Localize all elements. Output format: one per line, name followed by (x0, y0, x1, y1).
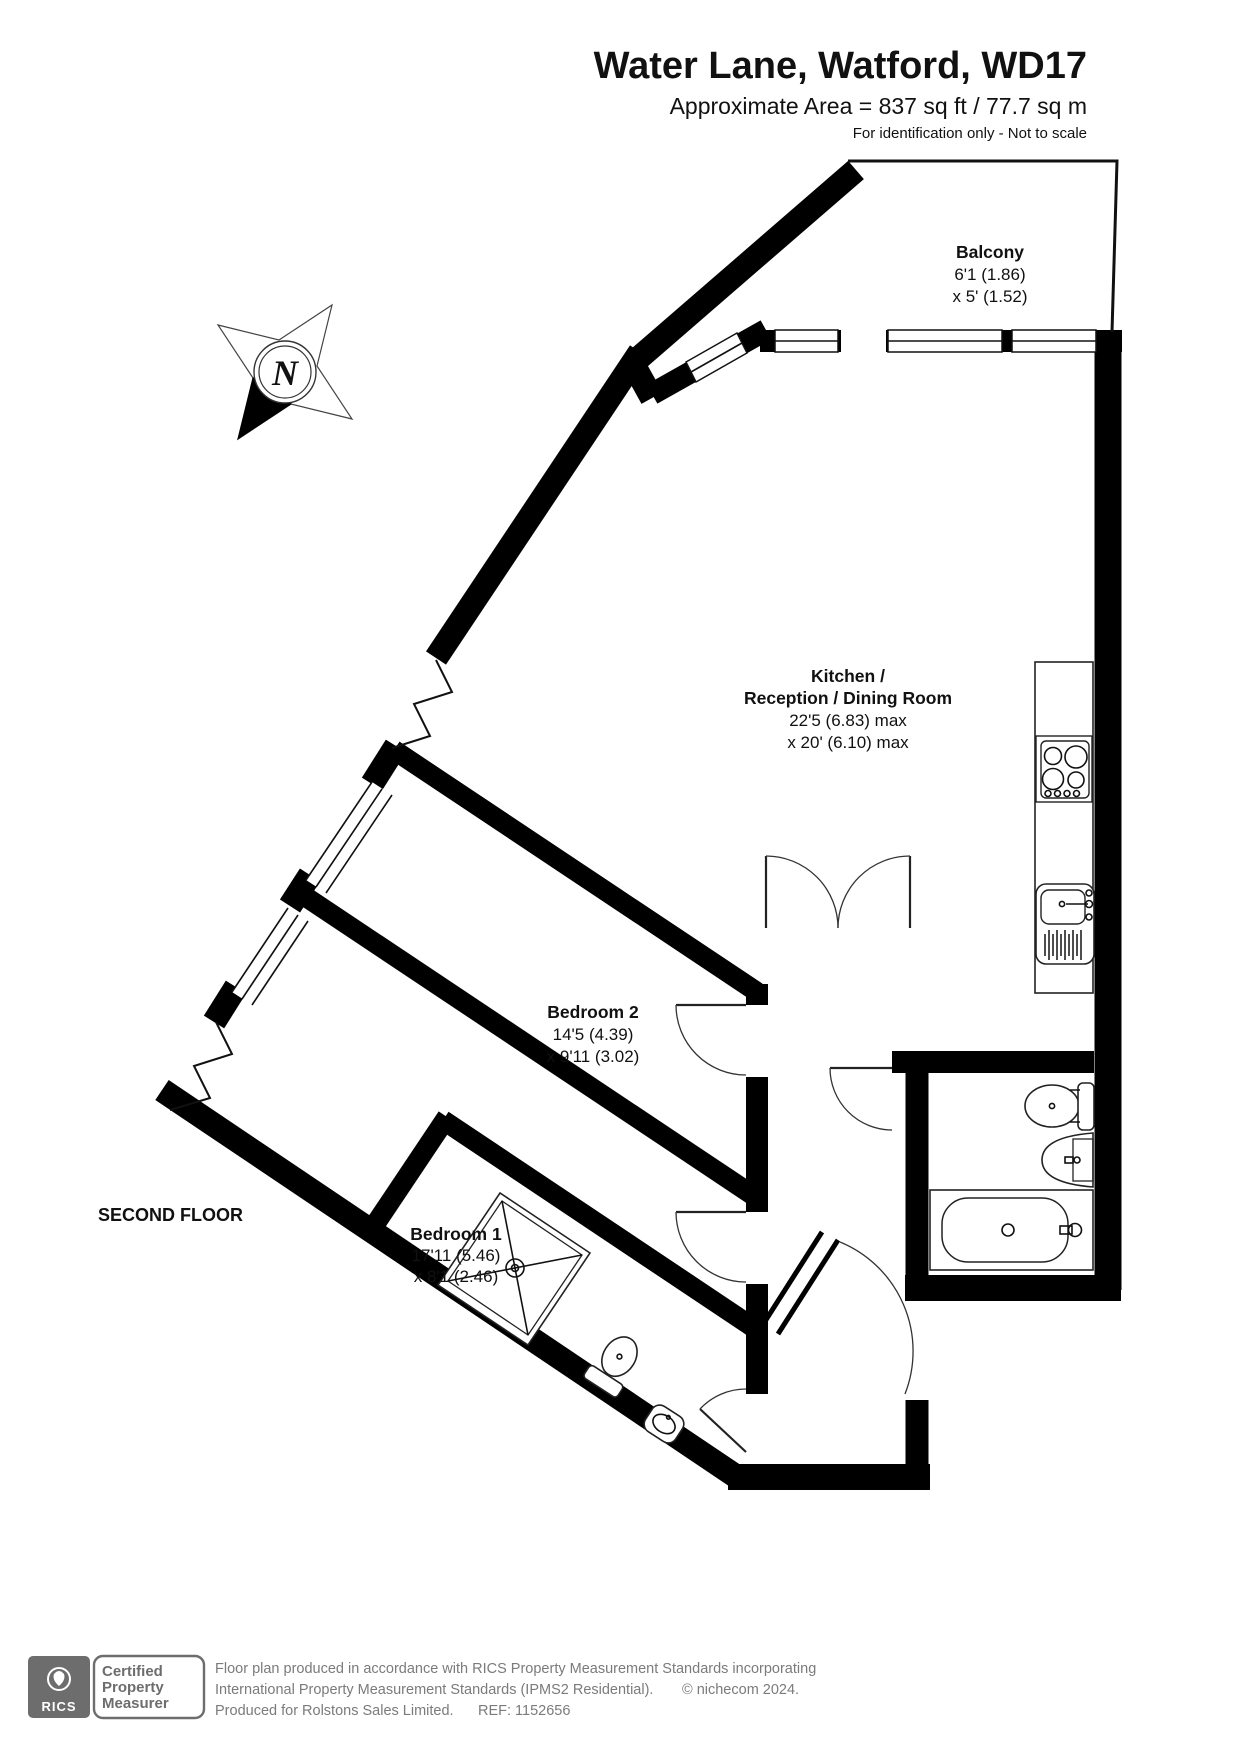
badge-line1: Certified (102, 1663, 163, 1680)
footer: RICS Certified Property Measurer Floor p… (28, 1656, 816, 1719)
balcony-dim2: x 5' (1.52) (952, 287, 1027, 306)
kitchen-dim1: 22'5 (6.83) max (789, 711, 907, 730)
kitchen-name-line1: Kitchen / (811, 666, 885, 686)
kitchen-double-door (766, 856, 910, 928)
approximate-area: Approximate Area = 837 sq ft / 77.7 sq m (670, 93, 1087, 119)
toilet (1025, 1083, 1094, 1130)
hob (1036, 736, 1092, 802)
windows (232, 329, 1096, 1005)
rics-badge: RICS (28, 1656, 90, 1718)
compass-rose: N (218, 305, 352, 439)
balcony-door-gap (841, 329, 886, 353)
balcony-name: Balcony (956, 242, 1024, 262)
compass-north-letter: N (271, 353, 300, 393)
bedroom2-name: Bedroom 2 (547, 1002, 639, 1022)
floor-plan-canvas: Water Lane, Watford, WD17 Approximate Ar… (0, 0, 1241, 1755)
badge-line3: Measurer (102, 1695, 169, 1712)
bedroom2-dim2: x 9'11 (3.02) (547, 1047, 640, 1066)
kitchen-sink (1036, 884, 1094, 964)
bedroom2-window (306, 782, 392, 893)
bedroom2-door (676, 1005, 746, 1075)
disclaimer-line1: Floor plan produced in accordance with R… (215, 1661, 816, 1677)
basin (1042, 1133, 1093, 1187)
identification-note: For identification only - Not to scale (853, 125, 1087, 142)
header: Water Lane, Watford, WD17 Approximate Ar… (594, 45, 1087, 142)
reference-number: REF: 1152656 (478, 1703, 570, 1719)
bedroom1-dim2: x 8'1 (2.46) (414, 1267, 499, 1286)
disclaimer-line2: International Property Measurement Stand… (215, 1682, 653, 1698)
room-label-bedroom2: Bedroom 2 14'5 (4.39) x 9'11 (3.02) (547, 1002, 640, 1066)
badge-line2: Property (102, 1679, 164, 1696)
bathroom-door (830, 1068, 892, 1130)
doors (676, 856, 913, 1452)
kitchen-name-line2: Reception / Dining Room (744, 688, 952, 708)
balcony-dim1: 6'1 (1.86) (954, 265, 1025, 284)
room-label-bedroom1: Bedroom 1 17'11 (5.46) x 8'1 (2.46) (410, 1224, 502, 1286)
kitchen-fixtures (1035, 662, 1094, 993)
bedroom1-name: Bedroom 1 (410, 1224, 502, 1244)
bathroom-fixtures (930, 1083, 1094, 1270)
room-label-balcony: Balcony 6'1 (1.86) x 5' (1.52) (952, 242, 1027, 306)
bedroom1-window (232, 908, 308, 1005)
copyright-note: © nichecom 2024. (682, 1682, 799, 1698)
bedroom1-dim1: 17'11 (5.46) (412, 1246, 501, 1265)
bathtub (930, 1190, 1093, 1270)
room-label-kitchen: Kitchen / Reception / Dining Room 22'5 (… (744, 666, 952, 752)
rics-wordmark: RICS (41, 1699, 76, 1714)
floor-level-label: SECOND FLOOR (98, 1205, 243, 1225)
certified-measurer-badge: Certified Property Measurer (94, 1656, 204, 1718)
produced-for-note: Produced for Rolstons Sales Limited. (215, 1703, 454, 1719)
front-door (762, 1232, 913, 1394)
page-title: Water Lane, Watford, WD17 (594, 45, 1087, 87)
kitchen-dim2: x 20' (6.10) max (787, 733, 909, 752)
bedroom2-dim1: 14'5 (4.39) (553, 1025, 634, 1044)
bedroom2-closet-zigzag (392, 660, 452, 748)
